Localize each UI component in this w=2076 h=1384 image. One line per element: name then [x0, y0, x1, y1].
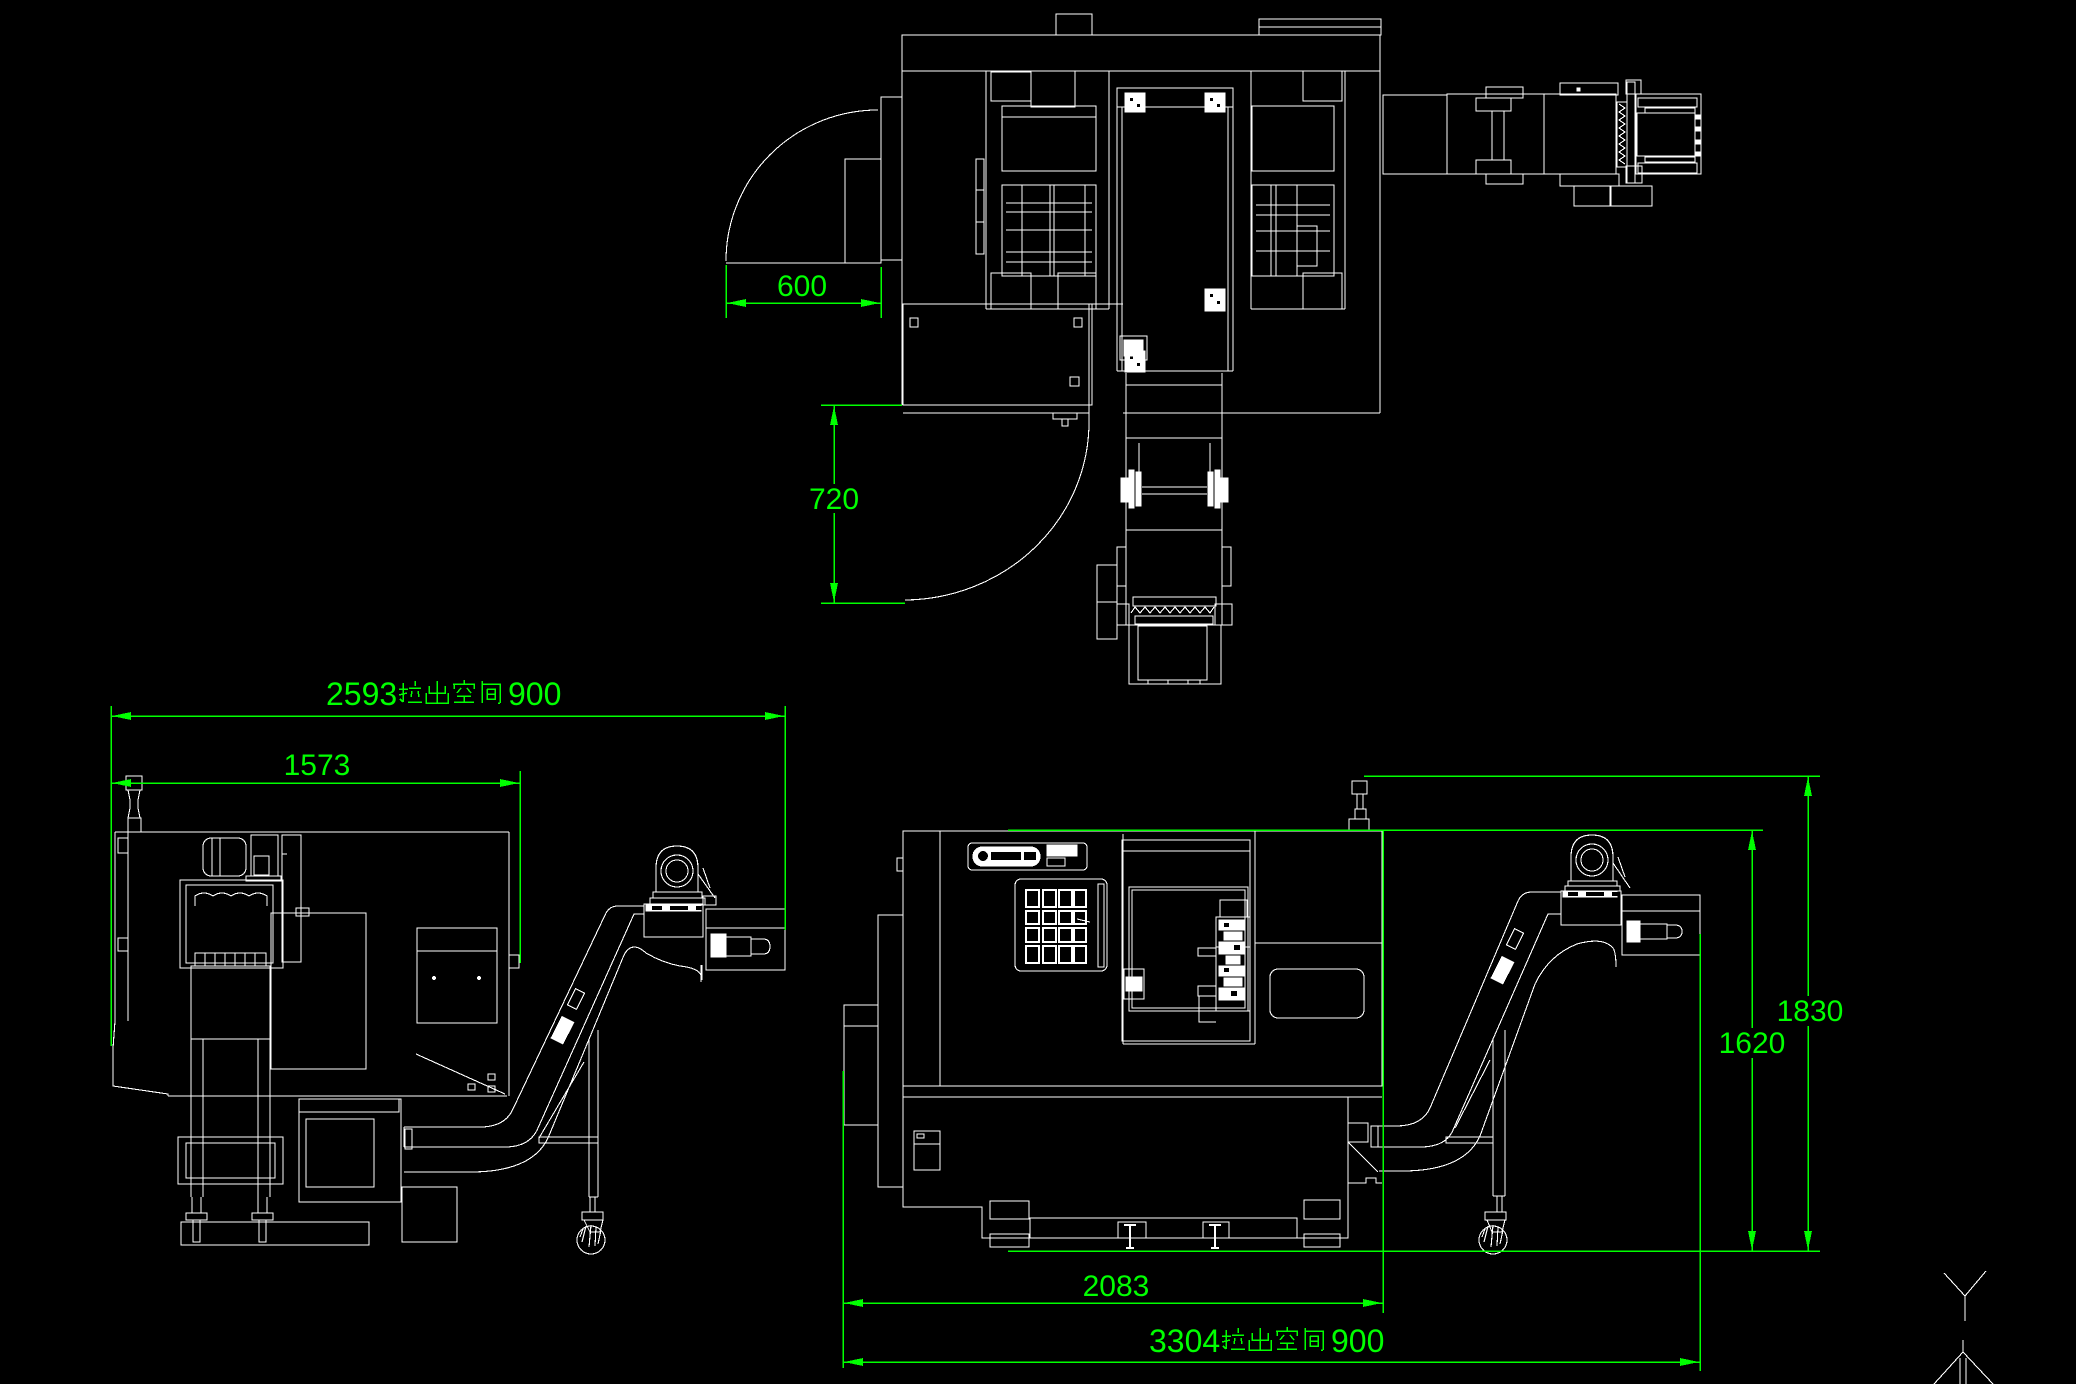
svg-text:900: 900 — [1331, 1323, 1384, 1359]
svg-text:900: 900 — [508, 676, 561, 712]
svg-text:1620: 1620 — [1719, 1027, 1786, 1060]
svg-text:2593: 2593 — [326, 676, 397, 712]
svg-text:720: 720 — [809, 483, 859, 516]
svg-text:1830: 1830 — [1777, 995, 1844, 1028]
svg-text:600: 600 — [777, 270, 827, 303]
svg-text:2083: 2083 — [1083, 1270, 1150, 1303]
svg-text:3304: 3304 — [1149, 1323, 1220, 1359]
svg-text:1573: 1573 — [284, 749, 351, 782]
